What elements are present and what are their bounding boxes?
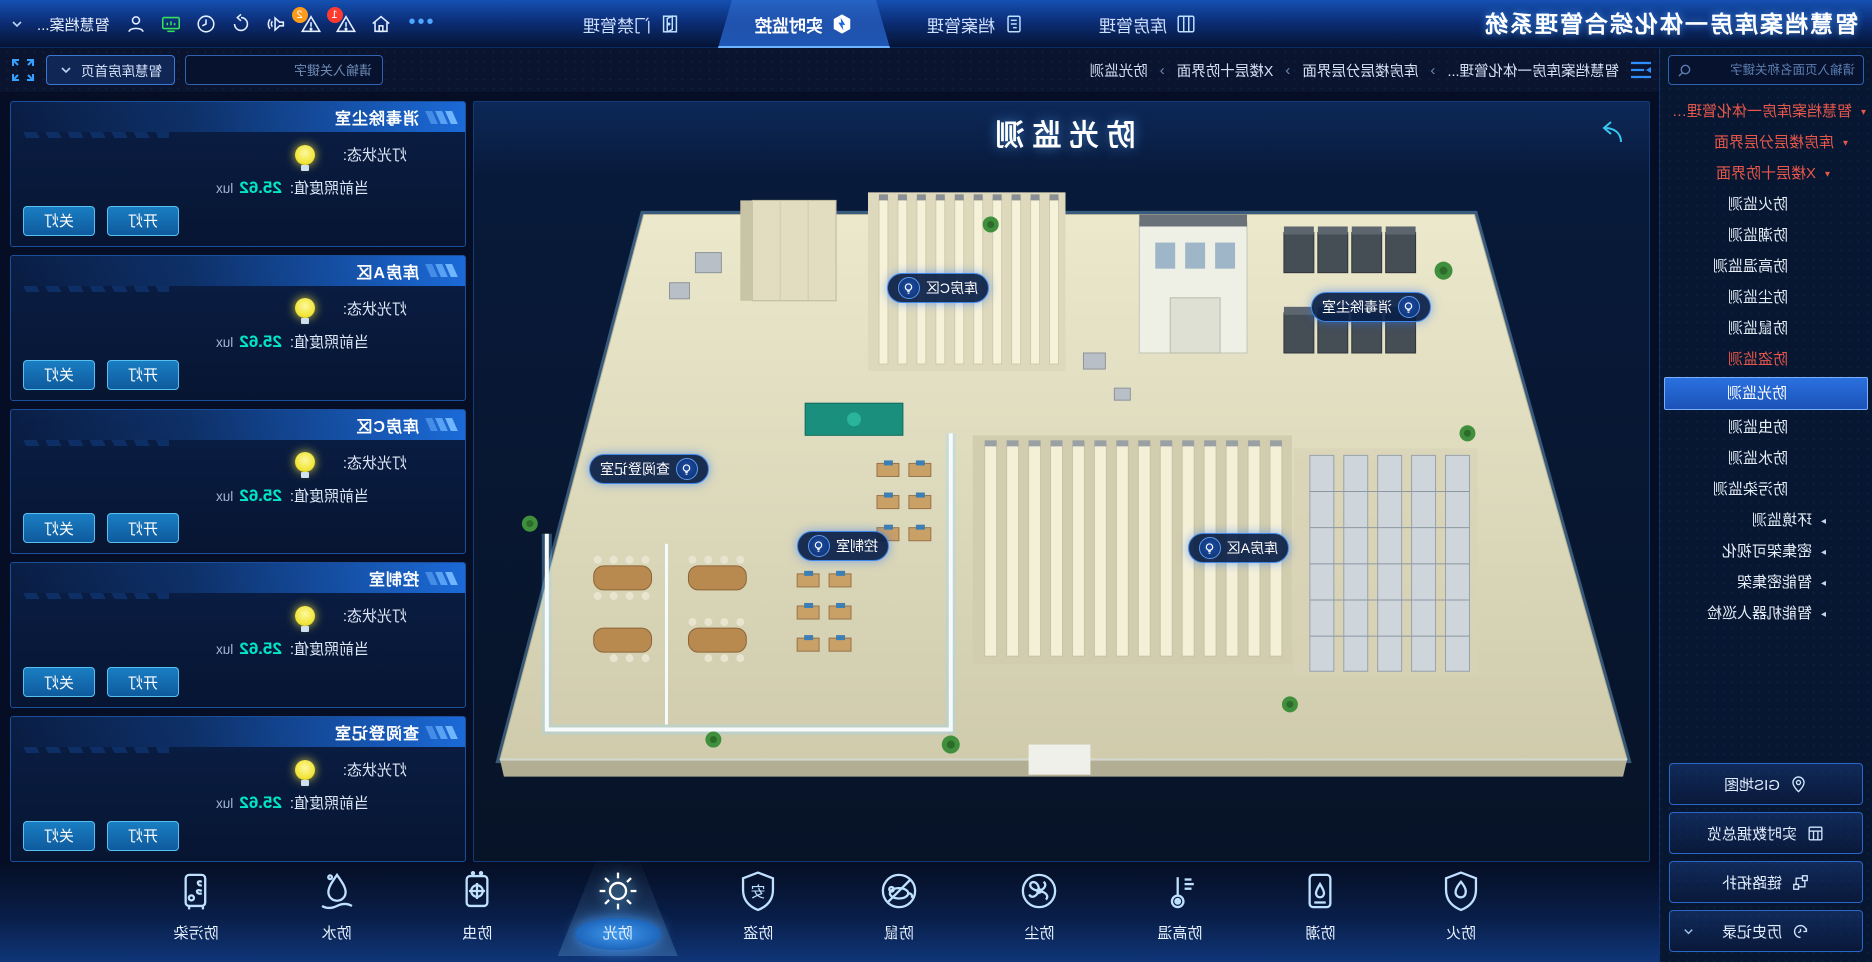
lamp-on-button[interactable]: 开灯 (107, 513, 179, 543)
content-column: 智慧档案库房一体化管理... › 库房楼层分层界面 › X楼层十防界面 › 防光… (0, 48, 1659, 962)
map-room-label[interactable]: 控制室 (797, 531, 889, 561)
tab-warehouse-management[interactable]: 库房管理 (1062, 0, 1234, 48)
main-nav: 库房管理 档案管理 实时监控 门禁管理 (546, 0, 1234, 48)
pending-badge: 2 (292, 7, 308, 23)
history-records-button[interactable]: 历史记录 (1669, 910, 1863, 952)
caret-collapsed-icon[interactable]: ▸ (1812, 506, 1826, 536)
tab-label: 档案管理 (927, 12, 995, 37)
fire-shield-icon (1438, 868, 1484, 914)
tab-label: 门禁管理 (583, 12, 651, 37)
bottombar-item-insect[interactable]: 防虫 (431, 868, 523, 962)
tree-item-dust[interactable]: 防尘监测 (1660, 282, 1872, 313)
bulb-icon (1199, 537, 1221, 559)
entrance (1029, 745, 1091, 775)
bulb-on-icon (295, 760, 315, 780)
dehumidifier-icon (1297, 868, 1343, 914)
bottombar-item-rodent[interactable]: 防鼠 (853, 868, 945, 962)
nav-tree: ▾智慧档案库房一体化管理系... ▾库房楼层分层界面 ▾X楼层十防界面 防火监测… (1660, 96, 1872, 629)
main-content: 防光监测 (0, 92, 1659, 862)
header-tail-decoration (19, 440, 169, 446)
tab-archive-management[interactable]: 档案管理 (890, 0, 1062, 48)
search-icon (1677, 63, 1692, 78)
tree-item-moisture[interactable]: 防潮监测 (1660, 220, 1872, 251)
breadcrumb-separator: › (1430, 62, 1435, 79)
breadcrumb-item-current[interactable]: 防光监测 (1090, 60, 1148, 81)
tree-item-light-selected[interactable]: 防光监测 (1664, 377, 1868, 410)
lux-unit: lux (216, 335, 233, 350)
tree-item-pollution[interactable]: 防污染监测 (1660, 474, 1872, 505)
header-slashes-icon (428, 264, 455, 277)
fullscreen-icon[interactable] (10, 57, 36, 83)
air-purifier-icon (173, 868, 219, 914)
tree-item-water[interactable]: 防水监测 (1660, 443, 1872, 474)
realtime-data-overview-button[interactable]: 实时数据总览 (1669, 812, 1863, 854)
bulb-icon (676, 458, 698, 480)
app-title: 智慧档案库房一体化综合管理系统 (1483, 0, 1858, 48)
caret-collapsed-icon[interactable]: ▸ (1812, 599, 1826, 629)
tree-item[interactable]: ▾库房楼层分层界面 (1660, 127, 1872, 158)
gis-map-button[interactable]: GIS地图 (1669, 763, 1863, 805)
bottombar-label: 防尘 (1024, 922, 1054, 943)
lamp-on-button[interactable]: 开灯 (107, 360, 179, 390)
bottombar-item-light-active[interactable]: 防光 (572, 868, 664, 962)
lux-unit: lux (216, 642, 233, 657)
card-header: 库房A区 (11, 256, 465, 286)
lamp-on-button[interactable]: 开灯 (107, 206, 179, 236)
data-overview-icon (1806, 824, 1825, 843)
room-label-text: 控制室 (836, 536, 878, 556)
sidebar-buttons: GIS地图 实时数据总览 链路拓扑 历史记录 (1660, 756, 1872, 962)
light-status-label: 灯光状态: (343, 605, 407, 626)
breadcrumb-item[interactable]: 智慧档案库房一体化管理... (1447, 60, 1619, 81)
history-clock-icon (1791, 922, 1810, 941)
caret-expanded-icon[interactable]: ▾ (1816, 159, 1830, 189)
home-icon[interactable] (370, 13, 392, 35)
header-slashes-icon (428, 572, 455, 585)
topbar: 智慧档案库房一体化综合管理系统 库房管理 档案管理 实时监控 门禁管理 ••• (0, 0, 1872, 48)
lux-value: 25.62 (239, 486, 282, 506)
room-card: 库房C区 灯光状态: 当前照度值:25.62lux 开灯关灯 (10, 409, 466, 555)
user-icon[interactable] (125, 13, 147, 35)
tree-item-smart-shelf[interactable]: ▸智能密集架 (1660, 567, 1872, 598)
lamp-off-button[interactable]: 关灯 (23, 667, 95, 697)
speaker-icon[interactable] (265, 13, 287, 35)
thermometer-icon (1157, 868, 1203, 914)
water-droplet-icon (314, 868, 360, 914)
bulb-on-icon (295, 606, 315, 626)
app-screen: 智慧档案库房一体化综合管理系统 库房管理 档案管理 实时监控 门禁管理 ••• (0, 0, 1872, 962)
alarm-warning-icon[interactable]: 1 (335, 13, 357, 35)
tree-item-fire[interactable]: 防火监测 (1660, 189, 1872, 220)
tree-item-insect[interactable]: 防虫监测 (1660, 412, 1872, 443)
bottombar-item-water[interactable]: 防水 (291, 868, 383, 962)
bottombar-item-pollution[interactable]: 防污染 (150, 868, 242, 962)
room-card: 消毒除尘室 灯光状态: 当前照度值:25.62lux 开灯关灯 (10, 101, 466, 247)
lux-value: 25.62 (239, 639, 282, 659)
room-card: 查阅登记室 灯光状态: 当前照度值:25.62lux 开灯关灯 (10, 716, 466, 862)
bottombar-item-moisture[interactable]: 防潮 (1274, 868, 1366, 962)
utility-room (1139, 214, 1247, 353)
shelf-icon (1175, 13, 1197, 35)
chevron-down-icon (59, 63, 73, 77)
room-card: 控制室 灯光状态: 当前照度值:25.62lux 开灯关灯 (10, 562, 466, 708)
tree-item-theft[interactable]: 防盗监测 (1660, 344, 1872, 375)
tree-item-rodent[interactable]: 防鼠监测 (1660, 313, 1872, 344)
tab-label: 库房管理 (1099, 12, 1167, 37)
lux-label: 当前照度值: (290, 331, 369, 352)
bottombar-item-dust[interactable]: 防尘 (993, 868, 1085, 962)
archive-doc-icon (1003, 13, 1025, 35)
room-label-text: 库房C区 (926, 278, 978, 298)
room-card: 库房A区 灯光状态: 当前照度值:25.62lux 开灯关灯 (10, 255, 466, 401)
sun-icon (595, 868, 641, 914)
button-label: 链路拓扑 (1722, 872, 1782, 893)
header-tail-decoration (19, 747, 169, 753)
room-cards-panel: 消毒除尘室 灯光状态: 当前照度值:25.62lux 开灯关灯 库房A区 (10, 101, 466, 862)
topbar-actions: 1 2 智慧档案... (10, 0, 392, 48)
bottombar-label: 防虫 (462, 922, 492, 943)
lux-value: 25.62 (239, 178, 282, 198)
tree-item-robot-patrol[interactable]: ▸智能机器人巡检 (1660, 598, 1872, 629)
bulb-on-icon (295, 145, 315, 165)
lamp-off-button[interactable]: 关灯 (23, 821, 95, 851)
page-search-input[interactable] (1692, 63, 1855, 77)
header-tail-decoration (19, 593, 169, 599)
room-label-text: 库房A区 (1227, 538, 1278, 558)
link-topology-button[interactable]: 链路拓扑 (1669, 861, 1863, 903)
door-icon (659, 13, 681, 35)
bottombar-label: 防高温 (1157, 922, 1202, 943)
lux-label: 当前照度值: (290, 792, 369, 813)
tree-item-shelf-visualization[interactable]: ▸密集架可视化 (1660, 536, 1872, 567)
map-room-label[interactable]: 库房A区 (1188, 533, 1289, 563)
card-title: 库房C区 (355, 413, 419, 437)
header-slashes-icon (428, 726, 455, 739)
room-label-text: 消毒除尘室 (1322, 297, 1392, 317)
bulb-on-icon (295, 298, 315, 318)
fan-icon (1016, 868, 1062, 914)
header-slashes-icon (428, 418, 455, 431)
header-tail-decoration (19, 286, 169, 292)
tree-item[interactable]: ▾X楼层十防界面 (1660, 158, 1872, 189)
bottombar-item-high-temp[interactable]: 防高温 (1134, 868, 1226, 962)
keyword-search-input[interactable] (185, 55, 383, 85)
lux-label: 当前照度值: (290, 638, 369, 659)
map-pin-icon (1789, 775, 1808, 794)
button-label: 历史记录 (1722, 921, 1782, 942)
tab-access-control[interactable]: 门禁管理 (546, 0, 718, 48)
insect-killer-icon (454, 868, 500, 914)
header-slashes-icon (428, 111, 455, 124)
tree-item[interactable]: ▾智慧档案库房一体化管理系... (1660, 96, 1872, 127)
no-mouse-icon (876, 868, 922, 914)
bulb-icon (898, 277, 920, 299)
topology-icon (1791, 873, 1810, 892)
security-shield-icon: 安 (735, 868, 781, 914)
map-room-label[interactable]: 库房C区 (887, 273, 989, 303)
lux-value: 25.62 (239, 332, 282, 352)
caret-expanded-icon[interactable]: ▾ (1834, 128, 1848, 158)
light-status-label: 灯光状态: (343, 144, 407, 165)
bottombar-item-fire[interactable]: 防火 (1415, 868, 1507, 962)
display-wall (805, 403, 903, 435)
lux-label: 当前照度值: (290, 485, 369, 506)
lamp-on-button[interactable]: 开灯 (107, 821, 179, 851)
bottombar-label: 防鼠 (884, 922, 914, 943)
card-title: 消毒除尘室 (334, 105, 419, 129)
page-search-box[interactable] (1668, 55, 1864, 85)
refresh-icon[interactable] (230, 13, 252, 35)
card-header: 库房C区 (11, 410, 465, 440)
bulb-on-icon (295, 452, 315, 472)
bulb-icon (1398, 296, 1420, 318)
lamp-off-button[interactable]: 关灯 (23, 513, 95, 543)
room-label-text: 查阅登记室 (600, 459, 670, 479)
breadcrumb: 智慧档案库房一体化管理... › 库房楼层分层界面 › X楼层十防界面 › 防光… (1090, 60, 1619, 81)
lamp-on-button[interactable]: 开灯 (107, 667, 179, 697)
alarm-badge: 1 (327, 7, 343, 23)
rack-rows (1294, 448, 1478, 675)
breadcrumb-item[interactable]: X楼层十防界面 (1177, 60, 1274, 81)
card-title: 查阅登记室 (334, 720, 419, 744)
tab-realtime-monitoring[interactable]: 实时监控 (718, 0, 890, 48)
header-tail-decoration (19, 132, 169, 138)
card-title: 控制室 (368, 566, 419, 590)
smart-warehouse-home-button[interactable]: 智慧库房首页 (46, 55, 175, 85)
breadcrumb-separator: › (1160, 62, 1165, 79)
chevron-down-icon[interactable] (1682, 925, 1695, 938)
lux-unit: lux (216, 796, 233, 811)
svg-text:安: 安 (751, 884, 766, 901)
bottombar-label: 防光 (575, 918, 661, 950)
lux-value: 25.62 (239, 793, 282, 813)
caret-collapsed-icon[interactable]: ▸ (1812, 568, 1826, 598)
card-title: 库房A区 (355, 259, 419, 283)
lux-unit: lux (216, 489, 233, 504)
breadcrumb-bar: 智慧档案库房一体化管理... › 库房楼层分层界面 › X楼层十防界面 › 防光… (0, 48, 1659, 92)
bottombar-label: 防盗 (743, 922, 773, 943)
map-room-label[interactable]: 消毒除尘室 (1311, 292, 1431, 322)
button-label: 实时数据总览 (1707, 823, 1797, 844)
monitor-status-icon[interactable] (160, 13, 182, 35)
map-room-label[interactable]: 查阅登记室 (589, 454, 709, 484)
card-header: 消毒除尘室 (11, 102, 465, 132)
chevron-down-icon[interactable] (10, 17, 24, 31)
caret-expanded-icon[interactable]: ▾ (1852, 97, 1866, 127)
light-status-label: 灯光状态: (343, 298, 407, 319)
bottombar-item-theft[interactable]: 安 防盗 (712, 868, 804, 962)
light-status-label: 灯光状态: (343, 452, 407, 473)
breadcrumb-separator: › (1285, 62, 1290, 79)
lux-unit: lux (216, 181, 233, 196)
card-header: 控制室 (11, 563, 465, 593)
bottombar-label: 防水 (322, 922, 352, 943)
caret-collapsed-icon[interactable]: ▸ (1812, 537, 1826, 567)
breadcrumb-bar-actions: 智慧库房首页 (10, 55, 383, 85)
breadcrumb-item[interactable]: 库房楼层分层界面 (1302, 60, 1418, 81)
monitor-hex-icon (831, 13, 853, 35)
bottombar-label: 防火 (1446, 922, 1476, 943)
pending-warning-icon[interactable]: 2 (300, 13, 322, 35)
bottombar-label: 防潮 (1305, 922, 1335, 943)
map-title: 防光监测 (474, 112, 1649, 154)
button-label: GIS地图 (1724, 774, 1780, 795)
tree-item-high-temp[interactable]: 防高温监测 (1660, 251, 1872, 282)
tree-item-environment[interactable]: ▸环境监测 (1660, 505, 1872, 536)
username[interactable]: 智慧档案... (37, 14, 110, 35)
light-status-label: 灯光状态: (343, 759, 407, 780)
sidebar-tree-panel: ▾智慧档案库房一体化管理系... ▾库房楼层分层界面 ▾X楼层十防界面 防火监测… (1659, 48, 1872, 962)
bottombar-label: 防污染 (174, 922, 219, 943)
tall-storage-box (740, 200, 836, 300)
card-header: 查阅登记室 (11, 717, 465, 747)
lux-label: 当前照度值: (290, 177, 369, 198)
lamp-off-button[interactable]: 关灯 (23, 206, 95, 236)
clock-icon[interactable] (195, 13, 217, 35)
nav-more-button[interactable]: ••• (400, 0, 440, 44)
collapse-menu-icon[interactable] (1629, 59, 1653, 81)
button-label: 智慧库房首页 (81, 60, 162, 80)
prevention-bottom-bar: 防火 防潮 防高温 防尘 防鼠 (0, 862, 1659, 962)
tab-label: 实时监控 (755, 12, 823, 37)
floor-map-panel: 防光监测 (473, 101, 1650, 862)
lamp-off-button[interactable]: 关灯 (23, 360, 95, 390)
bulb-icon (808, 535, 830, 557)
